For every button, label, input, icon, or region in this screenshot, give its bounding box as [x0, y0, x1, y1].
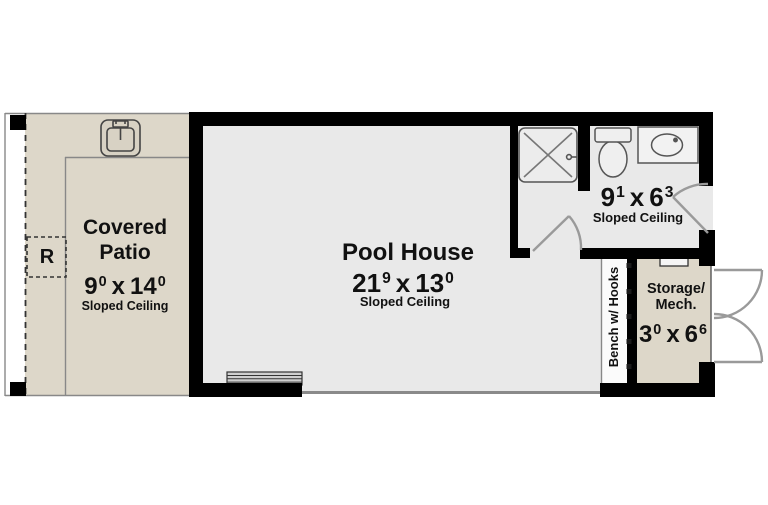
dim-inches: 1 — [616, 184, 625, 201]
wall-bottom-left — [189, 383, 302, 397]
covered-patio-title-line1: Covered — [25, 215, 225, 240]
dim-inches: 0 — [445, 270, 454, 287]
storage-title-line2: Mech. — [616, 298, 736, 314]
wall-hook-icon — [627, 314, 632, 319]
wall-top — [189, 112, 713, 126]
dim-feet: 9 — [601, 182, 615, 212]
dim-separator: x — [666, 321, 679, 348]
patio-post-bottom — [10, 382, 26, 396]
refrigerator-letter: R — [40, 246, 54, 268]
wall-hook-icon — [627, 263, 632, 268]
dim-inches: 3 — [665, 184, 674, 201]
covered-patio-ceiling-note: Sloped Ceiling — [25, 300, 225, 314]
dim-inches: 6 — [699, 322, 707, 338]
dim-feet: 9 — [84, 273, 97, 300]
dim-feet: 6 — [685, 321, 698, 348]
dim-inches: 0 — [99, 274, 107, 290]
bathroom-ceiling-note: Sloped Ceiling — [538, 211, 738, 225]
covered-patio-title-line2: Patio — [25, 240, 225, 265]
dim-feet: 3 — [639, 321, 652, 348]
pool-house-title: Pool House — [308, 240, 508, 266]
storage-title-line1: Storage/ — [616, 282, 736, 298]
wall-shower — [578, 126, 590, 191]
dim-inches: 9 — [382, 270, 391, 287]
patio-post-top — [10, 115, 26, 130]
wall-right-top — [699, 112, 713, 186]
wall-bath-bottom — [580, 248, 713, 259]
pool-house-ceiling-note: Sloped Ceiling — [305, 295, 505, 309]
bench-label: Bench w/ Hooks — [607, 267, 621, 367]
patio-sink-icon — [101, 120, 140, 156]
shower-icon — [519, 128, 577, 182]
dim-feet: 14 — [130, 273, 157, 300]
vanity-sink-icon — [638, 127, 698, 163]
wall-right-bottom — [699, 362, 715, 390]
bathroom-dimensions: 91x63 — [537, 183, 737, 212]
dim-feet: 6 — [649, 182, 663, 212]
storage-dimensions: 30x66 — [613, 322, 733, 348]
covered-patio-title: Covered Patio — [25, 215, 225, 265]
wall-hook-icon — [627, 364, 632, 369]
dim-inches: 0 — [158, 274, 166, 290]
floor-plan: Covered Patio 90x140 Sloped Ceiling R Po… — [0, 0, 768, 505]
covered-patio-dimensions: 90x140 — [25, 274, 225, 300]
wall-bottom-right — [600, 383, 715, 397]
wall-bath-partition — [510, 126, 518, 250]
dim-separator: x — [630, 182, 644, 212]
dim-separator: x — [112, 273, 125, 300]
storage-title: Storage/ Mech. — [616, 282, 736, 313]
dim-inches: 0 — [653, 322, 661, 338]
wall-bath-door-jamb — [510, 248, 530, 258]
